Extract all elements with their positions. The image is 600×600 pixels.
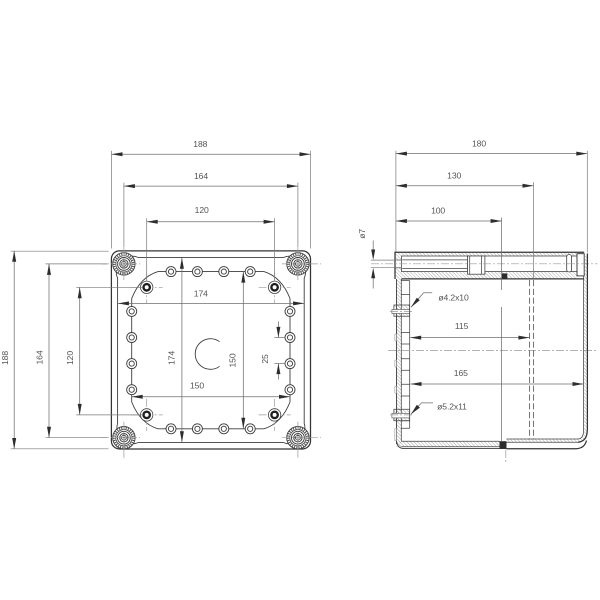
svg-text:164: 164 <box>35 350 45 364</box>
svg-text:120: 120 <box>65 351 75 365</box>
svg-text:174: 174 <box>194 289 208 299</box>
svg-text:150: 150 <box>190 381 204 391</box>
svg-text:ø5.2x11: ø5.2x11 <box>437 401 467 411</box>
svg-text:120: 120 <box>195 205 209 215</box>
svg-text:174: 174 <box>166 351 176 365</box>
svg-text:130: 130 <box>447 170 461 180</box>
svg-text:ø4.2x10: ø4.2x10 <box>438 293 469 303</box>
svg-text:180: 180 <box>472 138 486 148</box>
svg-text:165: 165 <box>454 368 468 378</box>
svg-text:188: 188 <box>193 139 207 149</box>
svg-text:100: 100 <box>431 205 445 215</box>
svg-text:164: 164 <box>194 171 208 181</box>
svg-text:ø7: ø7 <box>357 229 367 239</box>
svg-text:25: 25 <box>260 354 270 364</box>
svg-text:115: 115 <box>455 321 469 331</box>
svg-text:150: 150 <box>227 353 237 367</box>
svg-text:188: 188 <box>0 351 10 365</box>
